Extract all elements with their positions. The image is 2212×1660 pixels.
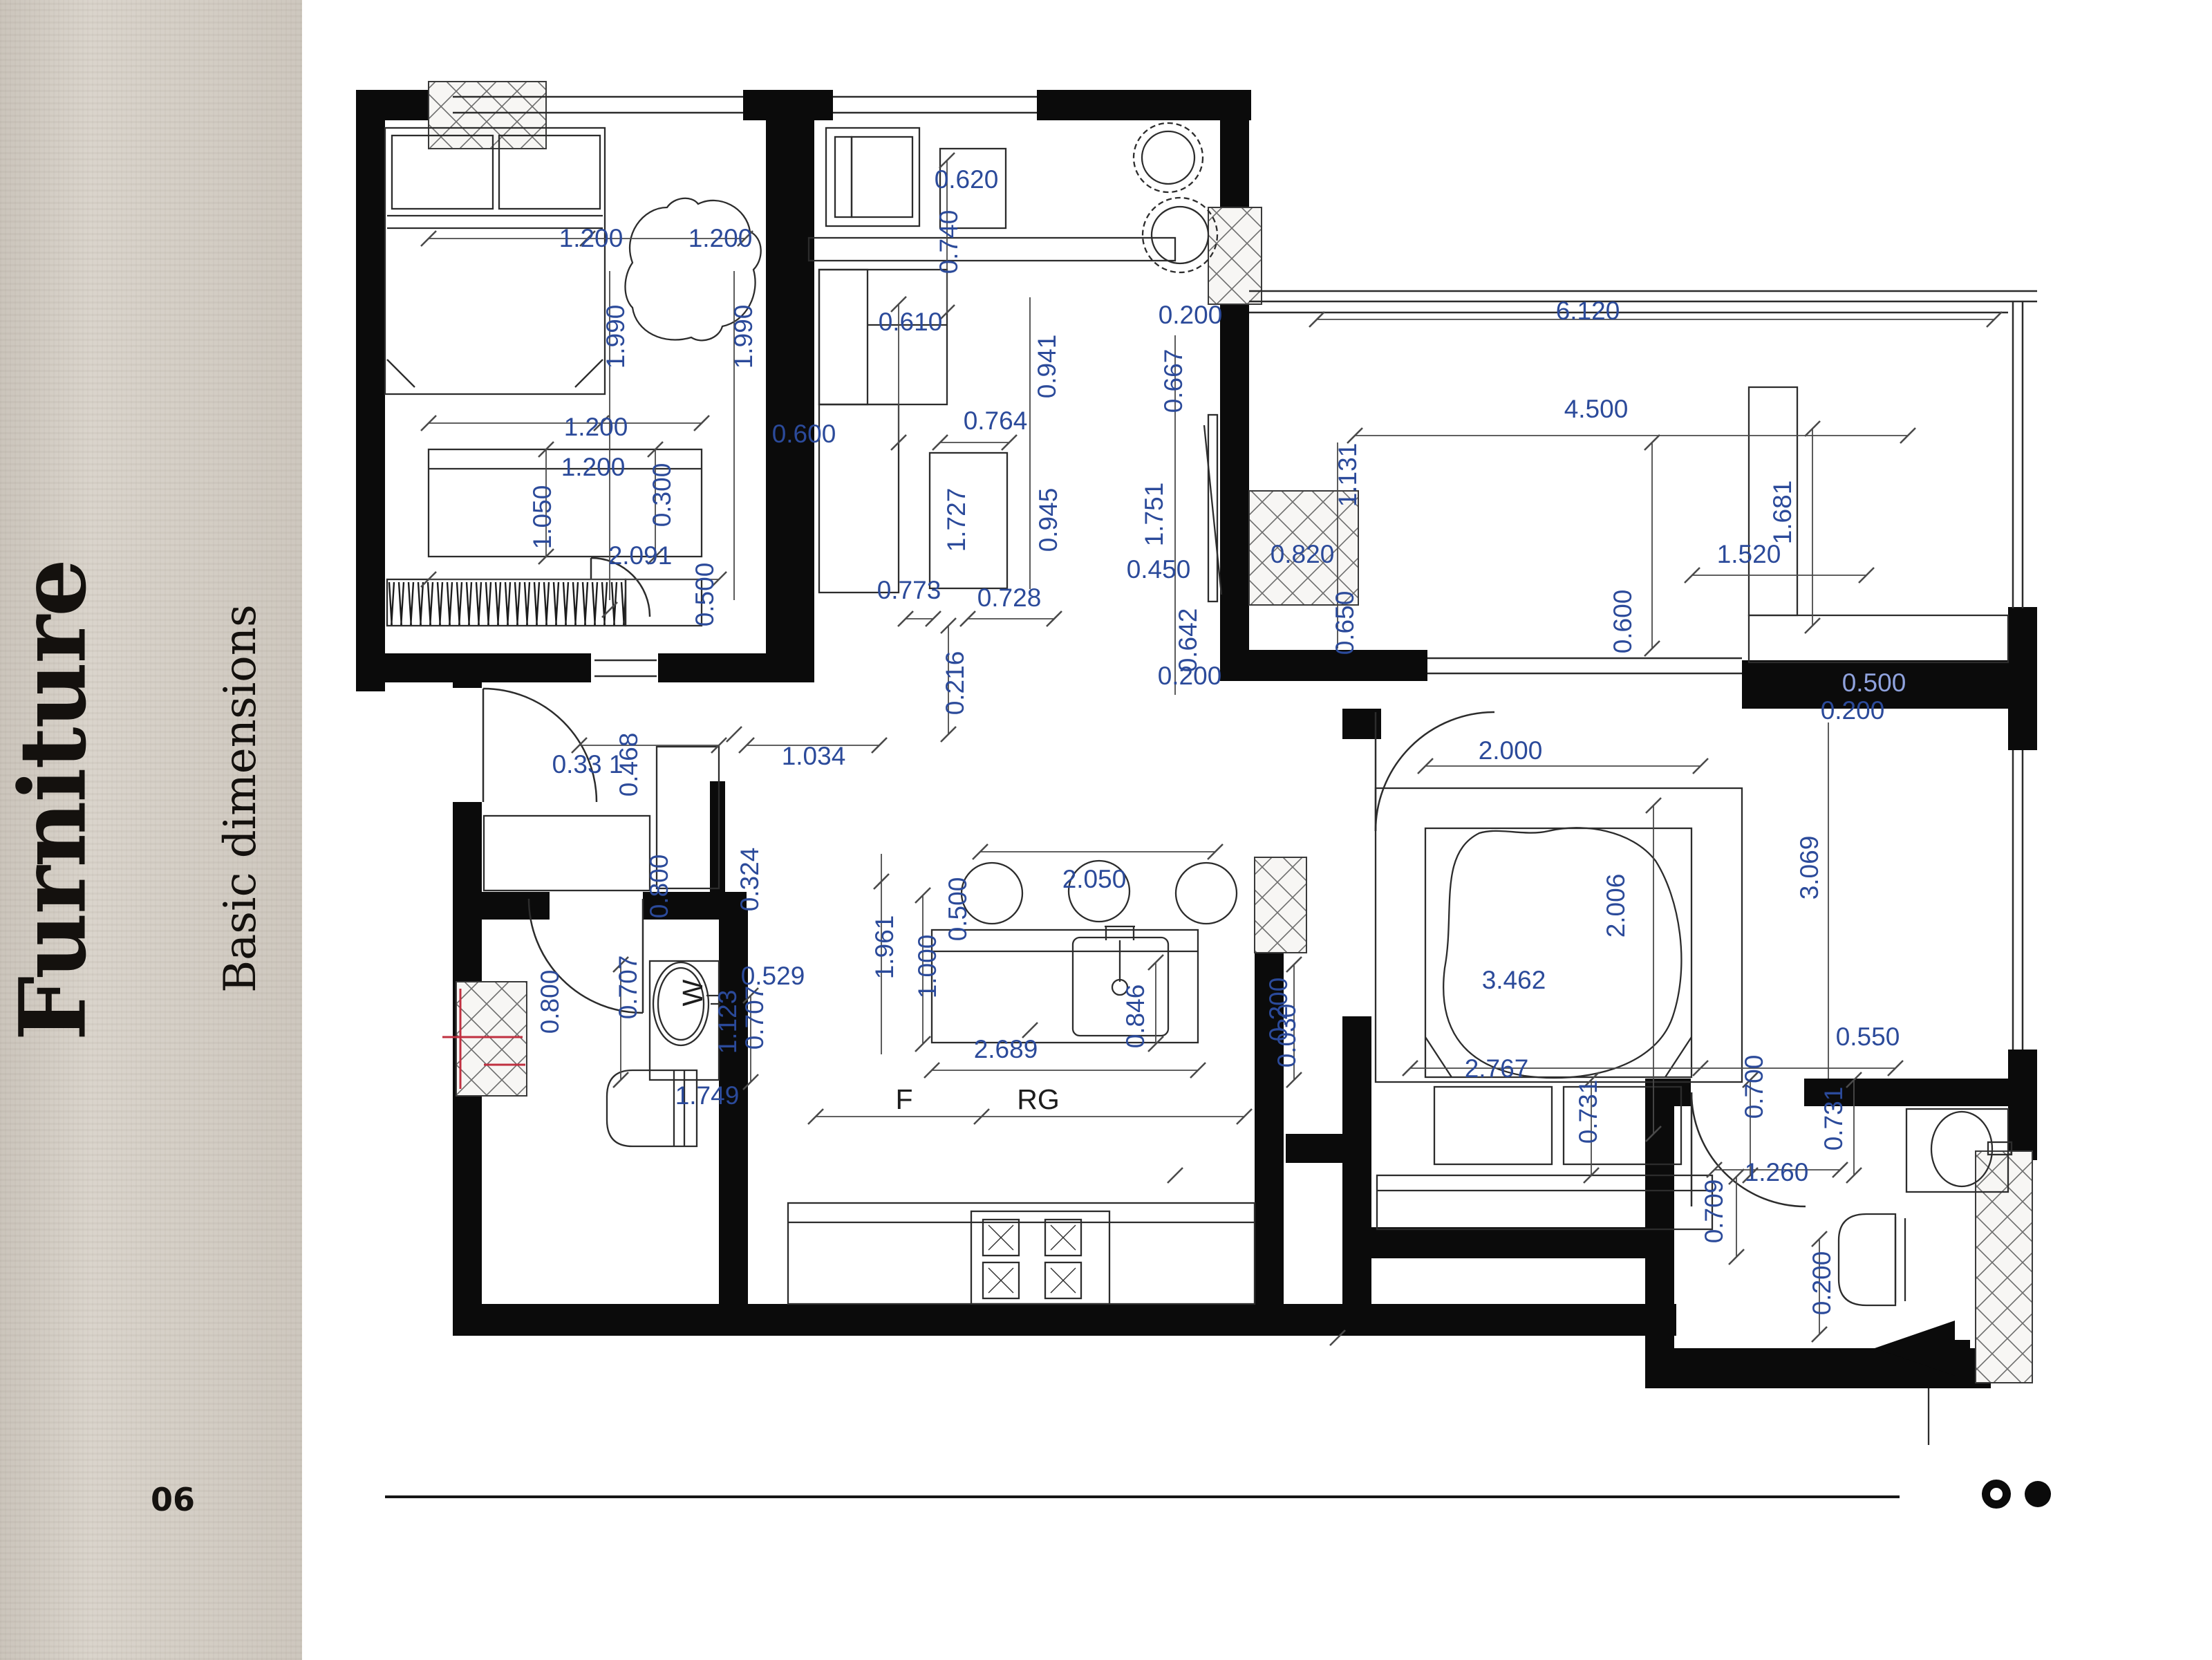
- dimension-label: 0.731: [1574, 1080, 1602, 1144]
- dimension-label: 0.468: [615, 733, 643, 797]
- dimension-label: 6.120: [1556, 297, 1620, 325]
- dimension-label: 1.200: [564, 413, 628, 441]
- dimension-label: 1.260: [1745, 1158, 1809, 1186]
- dimension-label: 2.050: [1062, 865, 1127, 893]
- dimension-label: 2.000: [1479, 736, 1543, 765]
- dimension-label: 3.462: [1482, 966, 1546, 994]
- dimension-label: 1.990: [601, 305, 630, 369]
- dimension-label: 3.069: [1795, 836, 1824, 900]
- dimension-label: 0.620: [935, 165, 999, 194]
- dimension-label: 2.006: [1602, 874, 1630, 938]
- dimension-label: 0.709: [1700, 1179, 1728, 1244]
- dimension-label: 0.707: [740, 986, 769, 1050]
- dimension-label: 0.740: [935, 210, 963, 274]
- dimension-label: 0.500: [944, 877, 972, 942]
- dimension-label: 0.550: [1836, 1023, 1900, 1051]
- room-label: RG: [1017, 1083, 1060, 1115]
- slide: Furniture Basic dimensions 06: [0, 0, 2212, 1660]
- dimension-label: 0.764: [964, 407, 1028, 435]
- dimension-label: 0.945: [1034, 488, 1062, 552]
- dimension-label: 1.050: [528, 485, 556, 550]
- dimension-label: 1.727: [942, 488, 971, 552]
- bath1-sink: [650, 961, 720, 1080]
- dimension-label: 0.200: [1159, 301, 1223, 329]
- dimension-label: 0.707: [614, 955, 642, 1020]
- dimension-label: 0.500: [691, 563, 719, 627]
- blanket: [1443, 828, 1681, 1078]
- tv: [1204, 415, 1221, 601]
- dimension-label: 0.650: [1331, 591, 1359, 655]
- dimension-label: 0.700: [1740, 1055, 1768, 1119]
- dimension-label: 0.33 1: [552, 750, 624, 778]
- dimension-label: 0.500: [1842, 669, 1906, 697]
- dimension-label: 0.200: [1821, 696, 1885, 725]
- dimension-label: 0.030: [1273, 1004, 1301, 1068]
- dimension-label: 1.200: [561, 453, 626, 481]
- dimension-label: 0.300: [648, 463, 676, 528]
- radiator: [387, 579, 702, 626]
- dimension-label: 0.728: [977, 584, 1042, 612]
- dimension-label: 1.749: [675, 1081, 740, 1110]
- dimension-label: 0.667: [1159, 349, 1188, 413]
- dimension-label: 2.091: [608, 541, 673, 570]
- dimension-label: 1.681: [1768, 481, 1797, 545]
- dimension-label: 1.751: [1140, 483, 1168, 547]
- dimension-label: 1.200: [559, 224, 624, 252]
- footer-dot-icon: [2025, 1481, 2051, 1507]
- shaft-hatches: [429, 82, 2032, 1383]
- console-shelf: [809, 238, 1175, 261]
- dimension-label: 0.200: [1808, 1251, 1836, 1316]
- floor-plan: 1.2001.2001.9901.9901.2001.2001.0500.300…: [0, 0, 2212, 1660]
- dimension-label: 0.610: [879, 308, 943, 336]
- dimension-label: 0.600: [1609, 590, 1637, 654]
- hall-cabinet: [484, 816, 650, 890]
- bed-drawer-left: [1434, 1087, 1552, 1164]
- wall-openings: [451, 688, 483, 802]
- dimension-label: 1.200: [688, 224, 753, 252]
- dimension-label: 0.216: [941, 651, 969, 716]
- bath2-toilet: [1839, 1214, 1905, 1305]
- dimension-label: 0.324: [735, 848, 764, 912]
- dimension-label: 0.600: [772, 420, 836, 448]
- footer: [385, 1481, 2051, 1507]
- stove-burners: [983, 1220, 1081, 1298]
- kitchen-island: [932, 926, 1198, 1043]
- room-label: F: [895, 1083, 912, 1115]
- dimension-label: 1.000: [913, 935, 941, 999]
- dimension-label: 2.689: [974, 1035, 1038, 1063]
- dimension-label: 0.800: [536, 970, 564, 1034]
- room-label: W: [677, 979, 709, 1006]
- walls: [356, 90, 2037, 1388]
- footer-ring-icon: [1986, 1484, 2007, 1504]
- dimension-label: 1.990: [729, 305, 758, 369]
- dimension-label: 0.941: [1033, 335, 1061, 399]
- dimension-label: 0.800: [645, 855, 673, 919]
- dimension-label: 0.450: [1127, 555, 1191, 584]
- armchair: [826, 128, 919, 226]
- dimension-label: 0.820: [1271, 540, 1335, 568]
- dimension-label: 1.961: [870, 915, 899, 980]
- dimension-label: 0.731: [1819, 1087, 1848, 1151]
- dimension-label: 1.520: [1717, 540, 1781, 568]
- bed-double: [1376, 788, 1742, 1082]
- dimension-label: 1.034: [782, 742, 846, 770]
- kitchen-counter: [788, 1203, 1255, 1304]
- bed-single: [385, 128, 605, 394]
- dimension-label: 4.500: [1564, 395, 1629, 423]
- dimension-label: 1.123: [713, 990, 742, 1054]
- dimension-label: 0.846: [1121, 985, 1150, 1049]
- dimension-label: 1.131: [1333, 443, 1362, 507]
- dimension-label: 0.773: [877, 576, 941, 604]
- dimension-label: 0.200: [1158, 662, 1222, 690]
- dimension-label: 2.767: [1465, 1054, 1529, 1083]
